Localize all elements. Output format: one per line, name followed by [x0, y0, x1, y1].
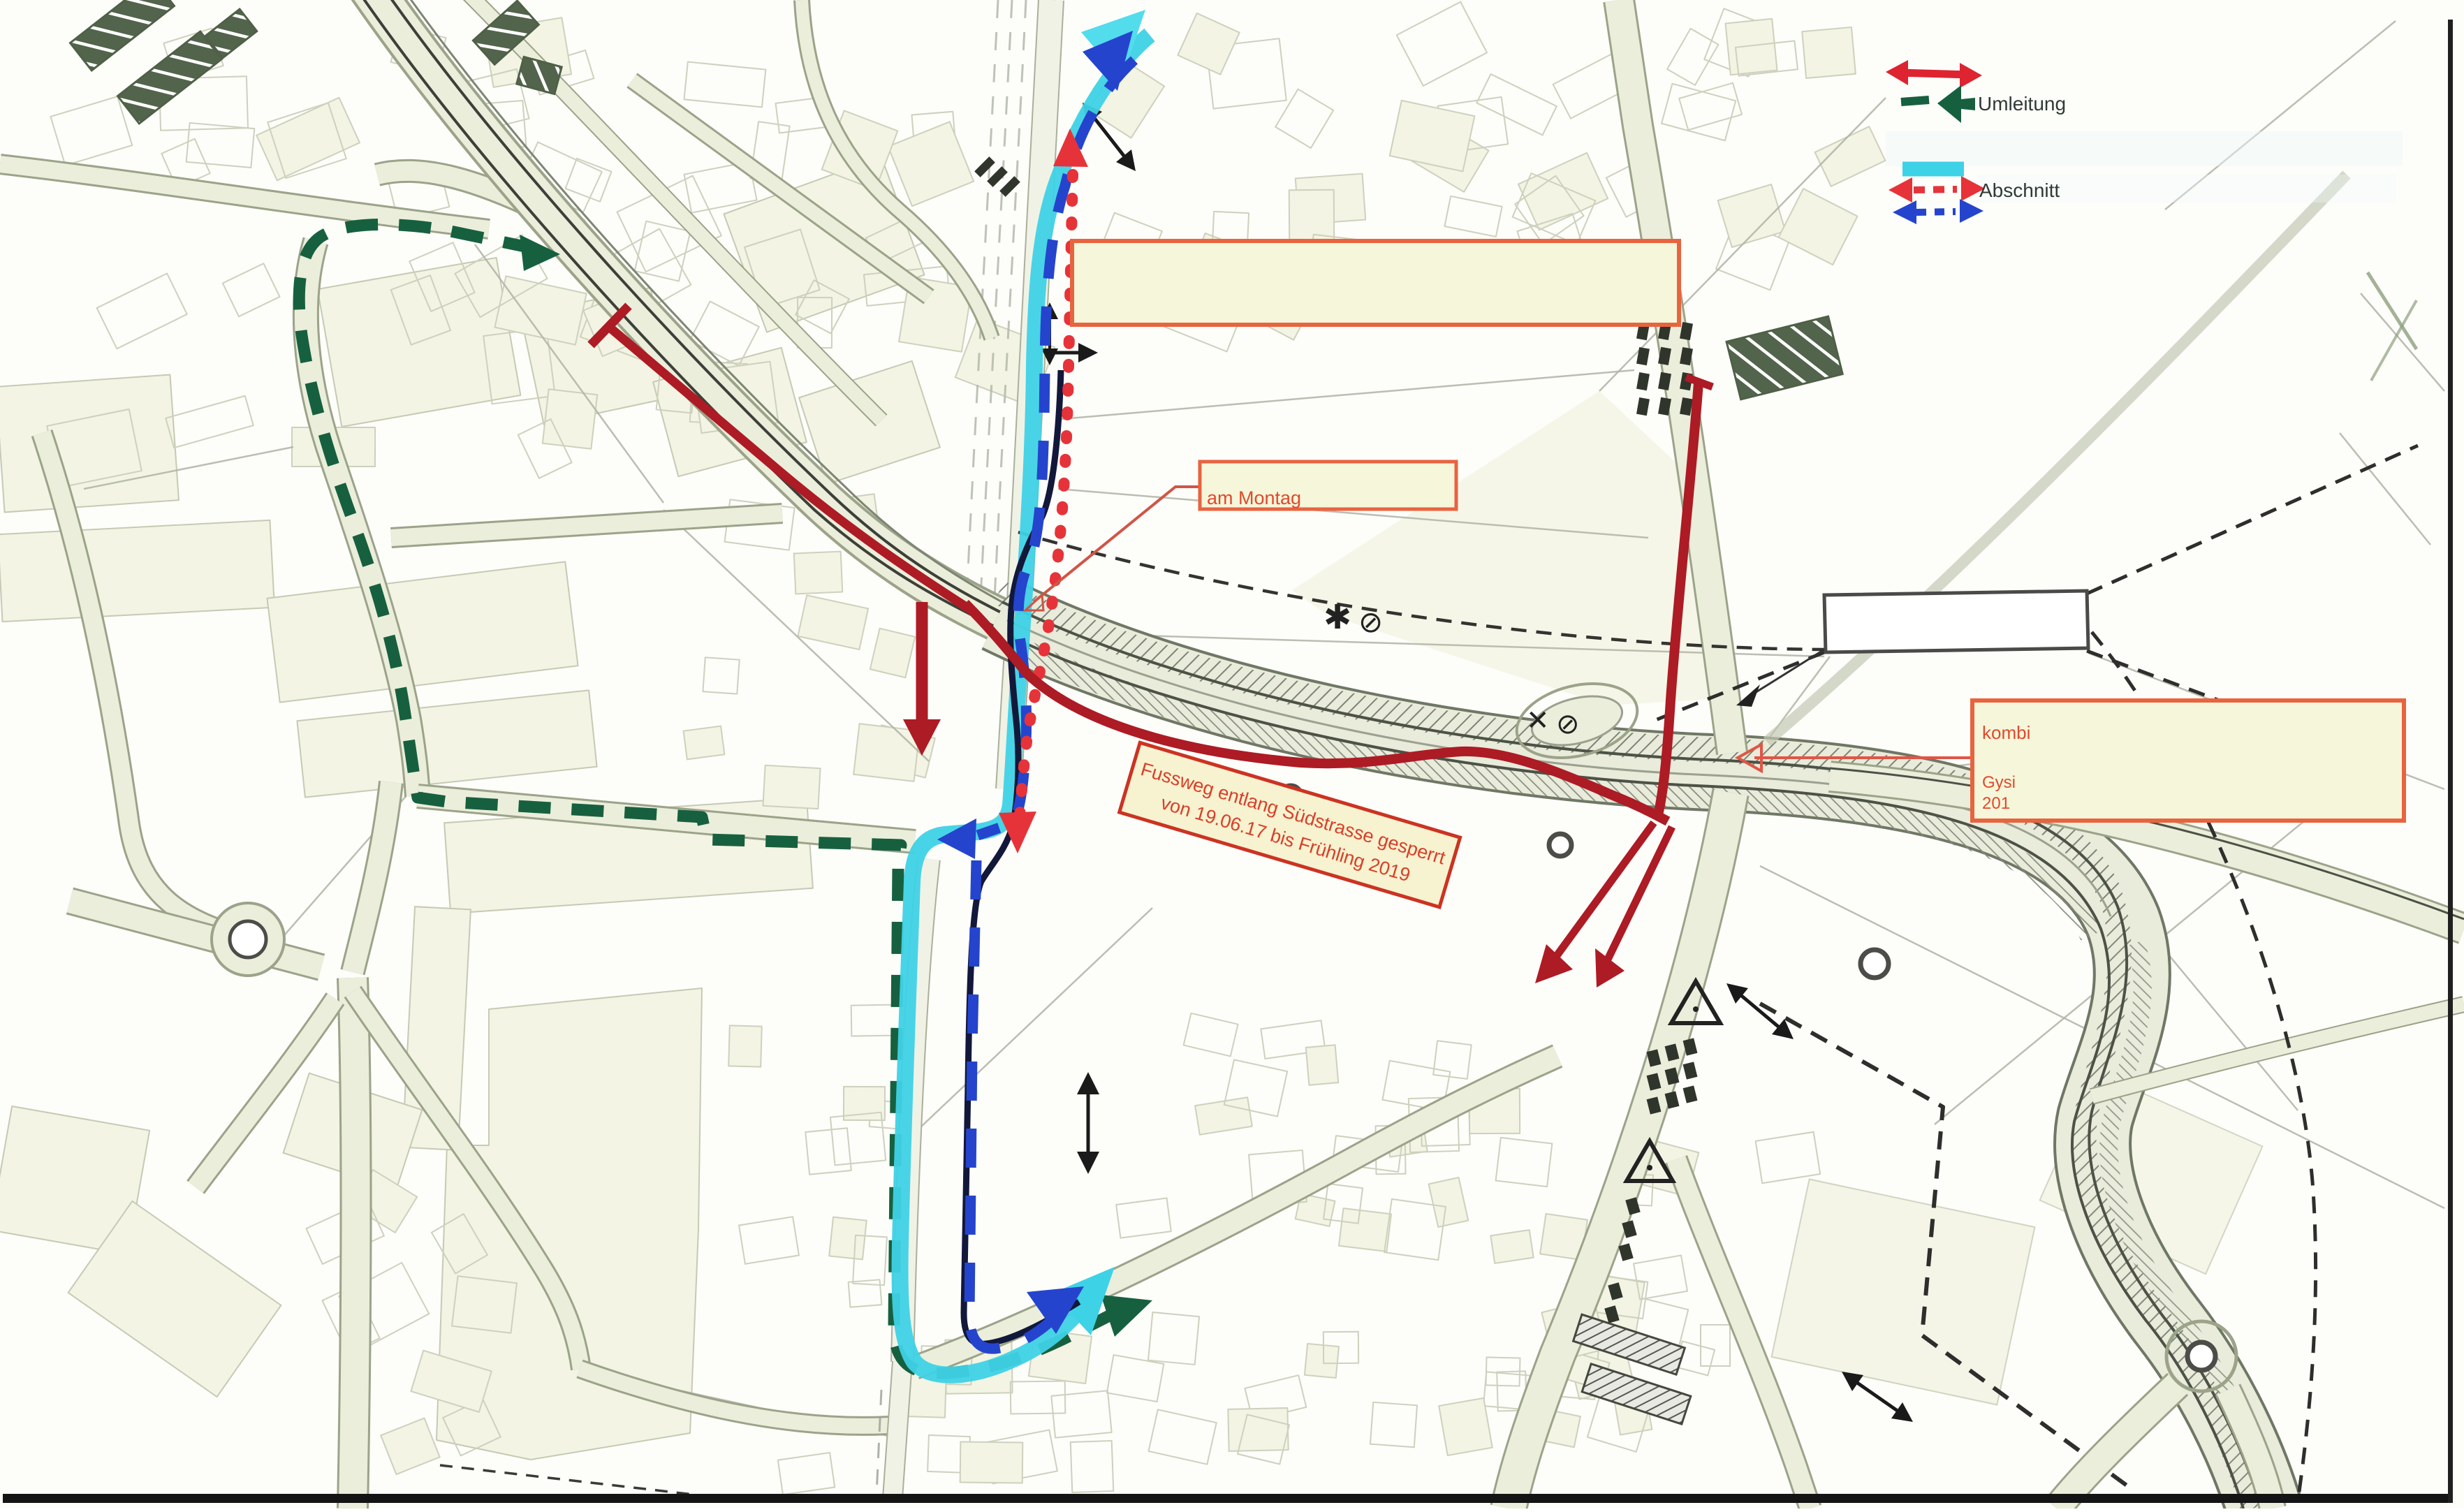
- svg-text:Gysi: Gysi: [1982, 773, 2016, 792]
- svg-text:kombi: kombi: [1982, 722, 2030, 743]
- svg-text:am Montag: am Montag: [1207, 487, 1301, 508]
- svg-text:⊘: ⊘: [1358, 605, 1383, 638]
- svg-text:✱: ✱: [1323, 599, 1351, 636]
- svg-text:201: 201: [1982, 794, 2010, 813]
- svg-text:⊘: ⊘: [1556, 709, 1580, 740]
- svg-text:✕: ✕: [1526, 705, 1550, 736]
- svg-text:Umleitung: Umleitung: [1978, 93, 2066, 115]
- svg-text:Abschnitt: Abschnitt: [1979, 179, 2060, 201]
